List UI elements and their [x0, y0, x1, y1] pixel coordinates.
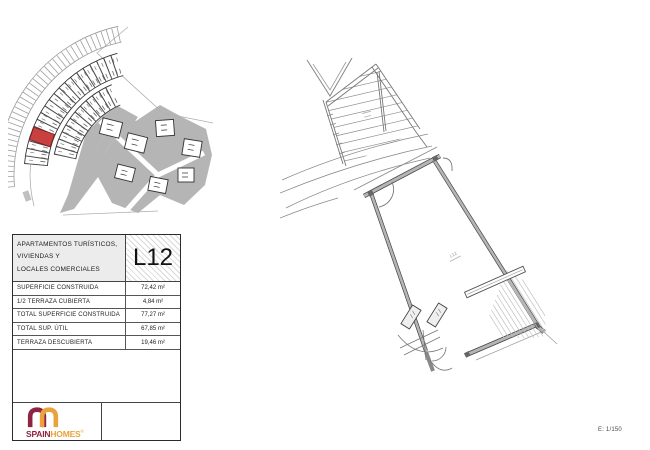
row-value: 19,46 m² [125, 336, 180, 349]
plot-corner-lines [307, 58, 352, 96]
table-row: SUPERFICIE CONSTRUIDA 72,42 m² [13, 282, 180, 296]
scale-label: E: 1/150 [598, 427, 622, 433]
room-label: L12 [447, 250, 461, 262]
panel-header: APARTAMENTOS TURÍSTICOS, VIVIENDAS Y LOC… [13, 235, 180, 282]
brand-cell: SPAINHOMES® [13, 403, 101, 440]
brand-part1: SPAIN [26, 429, 50, 439]
unit-code-badge: L12 [125, 235, 180, 281]
panel-title-line1: APARTAMENTOS TURÍSTICOS, [17, 239, 122, 251]
row-label: TOTAL SUPERFICIE CONSTRUIDA [13, 312, 125, 318]
site-small-block [22, 190, 31, 201]
room-walls [364, 155, 544, 371]
panel-title: APARTAMENTOS TURÍSTICOS, VIVIENDAS Y LOC… [13, 235, 125, 281]
row-label: TERRAZA DESCUBIERTA [13, 340, 125, 346]
upper-terrace [310, 60, 430, 169]
brand-wordmark: SPAINHOMES® [26, 429, 101, 439]
table-row: TOTAL SUP. ÚTIL 67,85 m² [13, 323, 180, 337]
row-value: 4,84 m² [125, 296, 180, 309]
row-label: SUPERFICIE CONSTRUIDA [13, 285, 125, 291]
plan-sheet: L12 [0, 0, 650, 450]
table-row: TERRAZA DESCUBIERTA 19,46 m² [13, 336, 180, 350]
row-value: 72,42 m² [125, 282, 180, 295]
title-block-empty-cell [101, 403, 180, 440]
panel-empty-area [13, 350, 180, 402]
panel-title-line3: LOCALES COMERCIALES [17, 264, 122, 276]
unit-info-panel: APARTAMENTOS TURÍSTICOS, VIVIENDAS Y LOC… [12, 234, 181, 441]
title-block-row: SPAINHOMES® [13, 402, 180, 440]
panel-title-line2: VIVIENDAS Y [17, 251, 122, 263]
row-label: 1/2 TERRAZA CUBIERTA [13, 299, 125, 305]
brand-part2: HOMES [50, 429, 80, 439]
deck-arcs [280, 134, 437, 218]
floor-plan-drawing: L12 [280, 30, 580, 380]
row-label: TOTAL SUP. ÚTIL [13, 326, 125, 332]
row-value: 77,27 m² [125, 309, 180, 322]
row-value: 67,85 m² [125, 323, 180, 336]
brand-trademark: ® [81, 429, 84, 434]
table-row: 1/2 TERRAZA CUBIERTA 4,84 m² [13, 296, 180, 310]
bottom-fixtures [398, 303, 452, 370]
table-row: TOTAL SUPERFICIE CONSTRUIDA 77,27 m² [13, 309, 180, 323]
spainhomes-arches-icon [26, 406, 60, 428]
site-plan-drawing [8, 25, 218, 220]
